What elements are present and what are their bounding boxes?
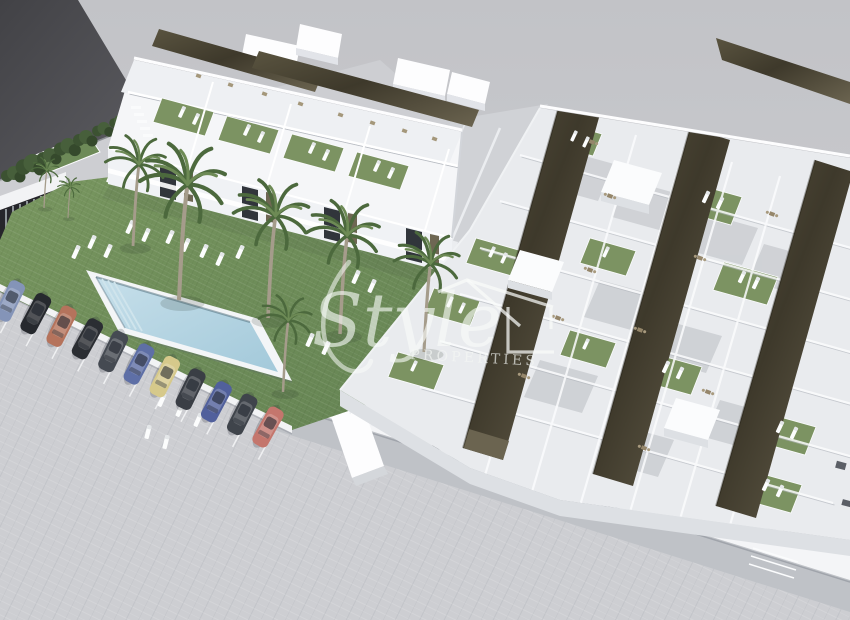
render-canvas: Style PROPERTIES	[0, 0, 850, 620]
property-render: Style PROPERTIES	[0, 0, 850, 620]
